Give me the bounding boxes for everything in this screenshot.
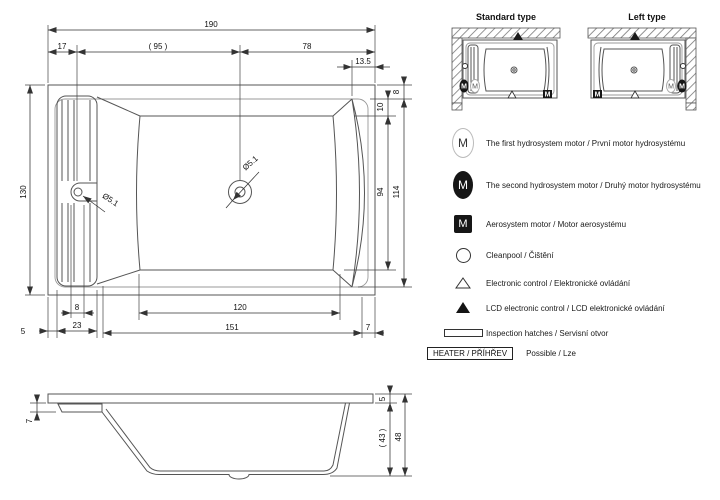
side-dim-43: ( 43 ) (378, 428, 387, 447)
legend-item-label: The first hydrosystem motor / První moto… (486, 139, 685, 148)
legend-item: M The second hydrosystem motor / Druhý m… (440, 169, 718, 201)
drain (511, 67, 517, 73)
svg-text:M: M (595, 92, 601, 99)
technical-drawing: 190 17 ( 95 ) 78 13.5 130 8 10 94 114 Ø5… (0, 0, 445, 500)
legend-item: M Aerosystem motor / Motor aerosystému (440, 208, 718, 240)
svg-text:M: M (545, 92, 551, 99)
svg-text:M: M (679, 84, 685, 91)
drain (631, 67, 637, 73)
svg-text:M: M (472, 84, 478, 91)
side-dim-7: 7 (25, 418, 34, 423)
electronic-control-icon (455, 276, 471, 290)
dim-inner-height: 94 (376, 187, 385, 196)
cleanpool-icon (456, 248, 471, 263)
second-hydro-motor-icon: M (453, 171, 473, 199)
side-dim-48: 48 (394, 432, 403, 441)
cleanpool-icon (681, 64, 686, 69)
side-view-drawing (48, 394, 373, 479)
wall-top (588, 28, 696, 38)
legend-item: Inspection hatches / Servisní otvor (440, 317, 718, 349)
dim-120: 120 (233, 303, 247, 312)
side-view-dimension-lines (37, 387, 405, 476)
dim-114: 114 (392, 185, 401, 198)
dim-left-offset: 17 (58, 42, 67, 51)
left-type-label: Left type (628, 12, 666, 22)
legend-item-label: The second hydrosystem motor / Druhý mot… (486, 181, 701, 190)
fixing-hole (74, 188, 82, 196)
electronic-control-icon (631, 91, 639, 98)
wall-foot (452, 103, 462, 110)
keyhole-slot (71, 183, 97, 201)
lcd-control-icon (455, 301, 471, 315)
dim-7: 7 (366, 323, 371, 332)
aero-motor-icon: M (454, 215, 472, 233)
dim-right: 78 (303, 42, 312, 51)
heater-note: HEATER / PŘÍHŘEV Possible / Lze (427, 347, 576, 360)
drain-diameter-label: Ø5.1 (241, 154, 260, 173)
standard-type-label: Standard type (476, 12, 536, 22)
legend-item-label: Electronic control / Elektronické ovládá… (486, 279, 630, 288)
wall-top (452, 28, 560, 38)
legend-item: M The first hydrosystem motor / První mo… (440, 127, 718, 159)
legend-item-label: Aerosystem motor / Motor aerosystému (486, 220, 626, 229)
dim-height: 130 (19, 185, 28, 199)
svg-text:M: M (461, 84, 467, 91)
side-dim-5: 5 (378, 396, 387, 401)
dim-rim-top: 8 (392, 89, 401, 94)
inspection-hatch-icon (444, 329, 483, 337)
top-view-dimension-lines (30, 30, 404, 333)
svg-text:M: M (668, 84, 674, 91)
basin-outline (137, 116, 337, 270)
dim-23: 23 (73, 321, 82, 330)
electronic-control-icon (508, 91, 516, 98)
dim-10: 10 (376, 102, 385, 111)
dim-mid: ( 95 ) (149, 42, 168, 51)
left-type-diagram: Left type M M M (588, 12, 696, 110)
hole-diameter-label: Ø5.1 (101, 191, 121, 208)
installation-type-diagrams: Standard type M M M Left type (440, 6, 720, 118)
dim-slot: 8 (75, 303, 80, 312)
legend-item-label: LCD electronic control / LCD elektronick… (486, 304, 665, 313)
cleanpool-icon (463, 64, 468, 69)
heater-box-label: HEATER / PŘÍHŘEV (427, 347, 513, 360)
dim-total-width: 190 (204, 20, 218, 29)
dim-5: 5 (21, 327, 26, 336)
dim-151: 151 (225, 323, 239, 332)
standard-type-diagram: Standard type M M M (452, 12, 560, 110)
legend-item-label: Inspection hatches / Servisní otvor (486, 329, 608, 338)
dim-13-5: 13.5 (355, 57, 371, 66)
heater-possible-label: Possible / Lze (526, 349, 576, 358)
top-view-drawing (48, 85, 375, 295)
wall-right (686, 38, 696, 103)
first-hydro-motor-icon: M (452, 128, 474, 158)
wall-foot (686, 103, 696, 110)
wall-left (452, 38, 462, 103)
legend-item-label: Cleanpool / Čištění (486, 251, 554, 260)
